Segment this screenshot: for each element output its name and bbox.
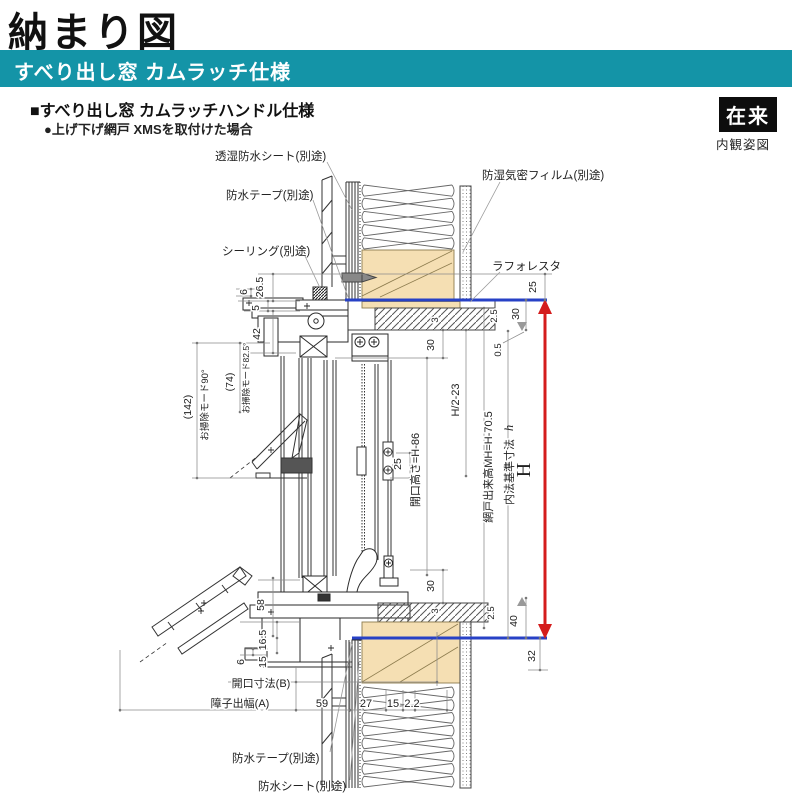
dim-30-top-right: 30 bbox=[510, 308, 522, 320]
dim-opening-height: 開口高さ=H-86 bbox=[408, 433, 422, 507]
dim-2-2: 2.2 bbox=[404, 698, 419, 710]
dim-sash-a: 障子出幅(A) bbox=[211, 696, 270, 710]
dim-30-bottom: 30 bbox=[425, 580, 437, 592]
dim-5: 5 bbox=[250, 305, 262, 311]
dim-142: (142) bbox=[182, 395, 194, 420]
dim-big-h: H bbox=[513, 463, 535, 477]
dim-74: (74) bbox=[224, 373, 236, 392]
callout-waterproof-tape-top: 防水テープ(別途) bbox=[226, 188, 314, 202]
dim-32: 32 bbox=[526, 650, 538, 662]
dim-58: 58 bbox=[255, 599, 267, 611]
callout-vapor-film: 防湿気密フィルム(別途) bbox=[482, 168, 604, 182]
dim-15-bottom: 15 bbox=[387, 698, 399, 710]
catalog-page: 納まり図 すべり出し窓 カムラッチ仕様 ■すべり出し窓 カムラッチハンドル仕様 … bbox=[0, 0, 800, 800]
label-cleaning-mode-90: お掃除モード90° bbox=[199, 369, 211, 441]
dim-40: 40 bbox=[508, 615, 520, 627]
dim-25-mid: 25 bbox=[392, 458, 404, 470]
callout-sealing: シーリング(別途) bbox=[222, 244, 310, 258]
dim-6-bottom: 6 bbox=[235, 659, 247, 665]
dim-59: 59 bbox=[316, 698, 328, 710]
dim-2-5-top-right: 2.5 bbox=[489, 309, 500, 322]
dim-half-h: H/2-23 bbox=[450, 383, 462, 416]
dim-opening-b: 開口寸法(B) bbox=[232, 676, 291, 690]
dim-inner-standard-h: h bbox=[502, 425, 516, 431]
callout-breathable-sheet: 透湿防水シート(別途) bbox=[215, 149, 326, 163]
dim-screen-height: 網戸出来高MH=H-70.5 bbox=[481, 411, 495, 523]
dim-2-5-bottom-right: 2.5 bbox=[486, 606, 497, 619]
dim-3-top: 3 bbox=[430, 317, 441, 322]
callout-laforesta: ラフォレスタ bbox=[492, 260, 561, 273]
section-drawing: 透湿防水シート(別途) 防水テープ(別途) シーリング(別途) 防湿気密フィルム… bbox=[0, 0, 800, 800]
dim-3-bottom: 3 bbox=[430, 608, 441, 613]
dim-42: 42 bbox=[251, 328, 263, 340]
dim-25-right: 25 bbox=[527, 281, 539, 293]
dim-6-top: 6 bbox=[238, 289, 250, 295]
dim-0-5: 0.5 bbox=[493, 343, 504, 356]
label-cleaning-mode-82: お掃除モード82.5° bbox=[241, 343, 251, 414]
dim-27: 27 bbox=[360, 698, 372, 710]
dim-30-top: 30 bbox=[425, 339, 437, 351]
dim-26-5: 26.5 bbox=[254, 277, 266, 298]
callout-waterproof-tape-bottom: 防水テープ(別途) bbox=[232, 751, 320, 765]
height-dimension-red bbox=[538, 299, 552, 639]
dim-16-5: 16.5 bbox=[257, 630, 269, 651]
dim-15-left: 15 bbox=[257, 656, 269, 668]
callout-waterproof-sheet-bottom: 防水シート(別途) bbox=[258, 779, 346, 793]
